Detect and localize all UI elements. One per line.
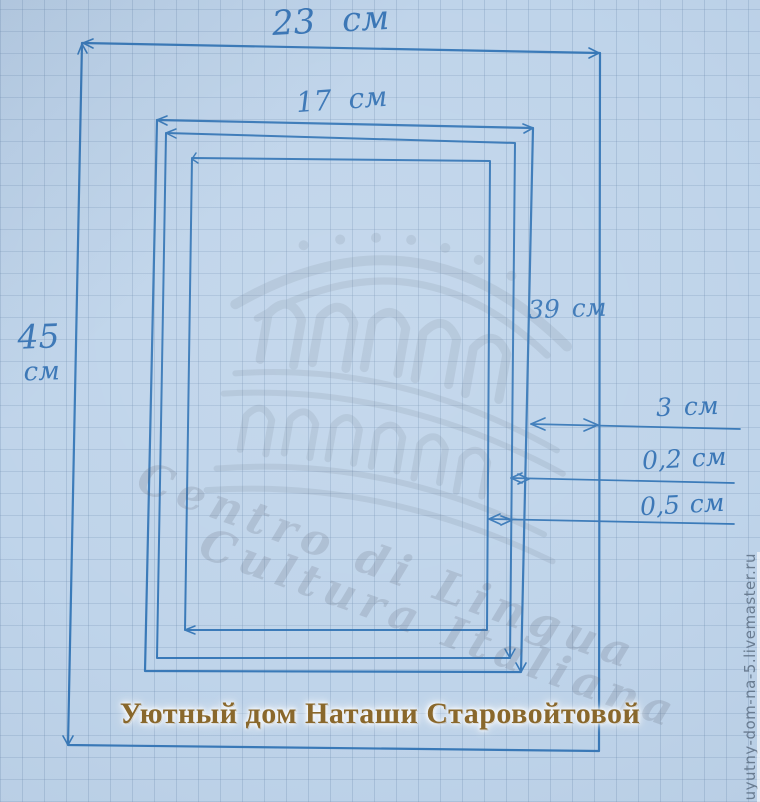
label-outer-height: 45 см [17, 319, 61, 385]
label-outer-height-value: 45 [17, 316, 60, 356]
label-inner-height: 39 см [528, 295, 607, 323]
label-side-margin: 3 см [656, 393, 719, 420]
label-gap-half: 0,5 см [639, 490, 725, 519]
label-inner-width: 17 см [295, 83, 388, 117]
caption-watermark: Уютный дом Наташи Старовойтовой [0, 697, 760, 731]
label-gap-thin: 0,2 см [641, 444, 727, 473]
dimension-arrow-0-2cm [511, 473, 734, 484]
label-outer-width: 23 см [271, 1, 390, 41]
scanned-sketch-photo: Centro di Lingua Cultura Italiana 23 см … [0, 0, 760, 802]
label-outer-height-unit: см [22, 358, 61, 385]
